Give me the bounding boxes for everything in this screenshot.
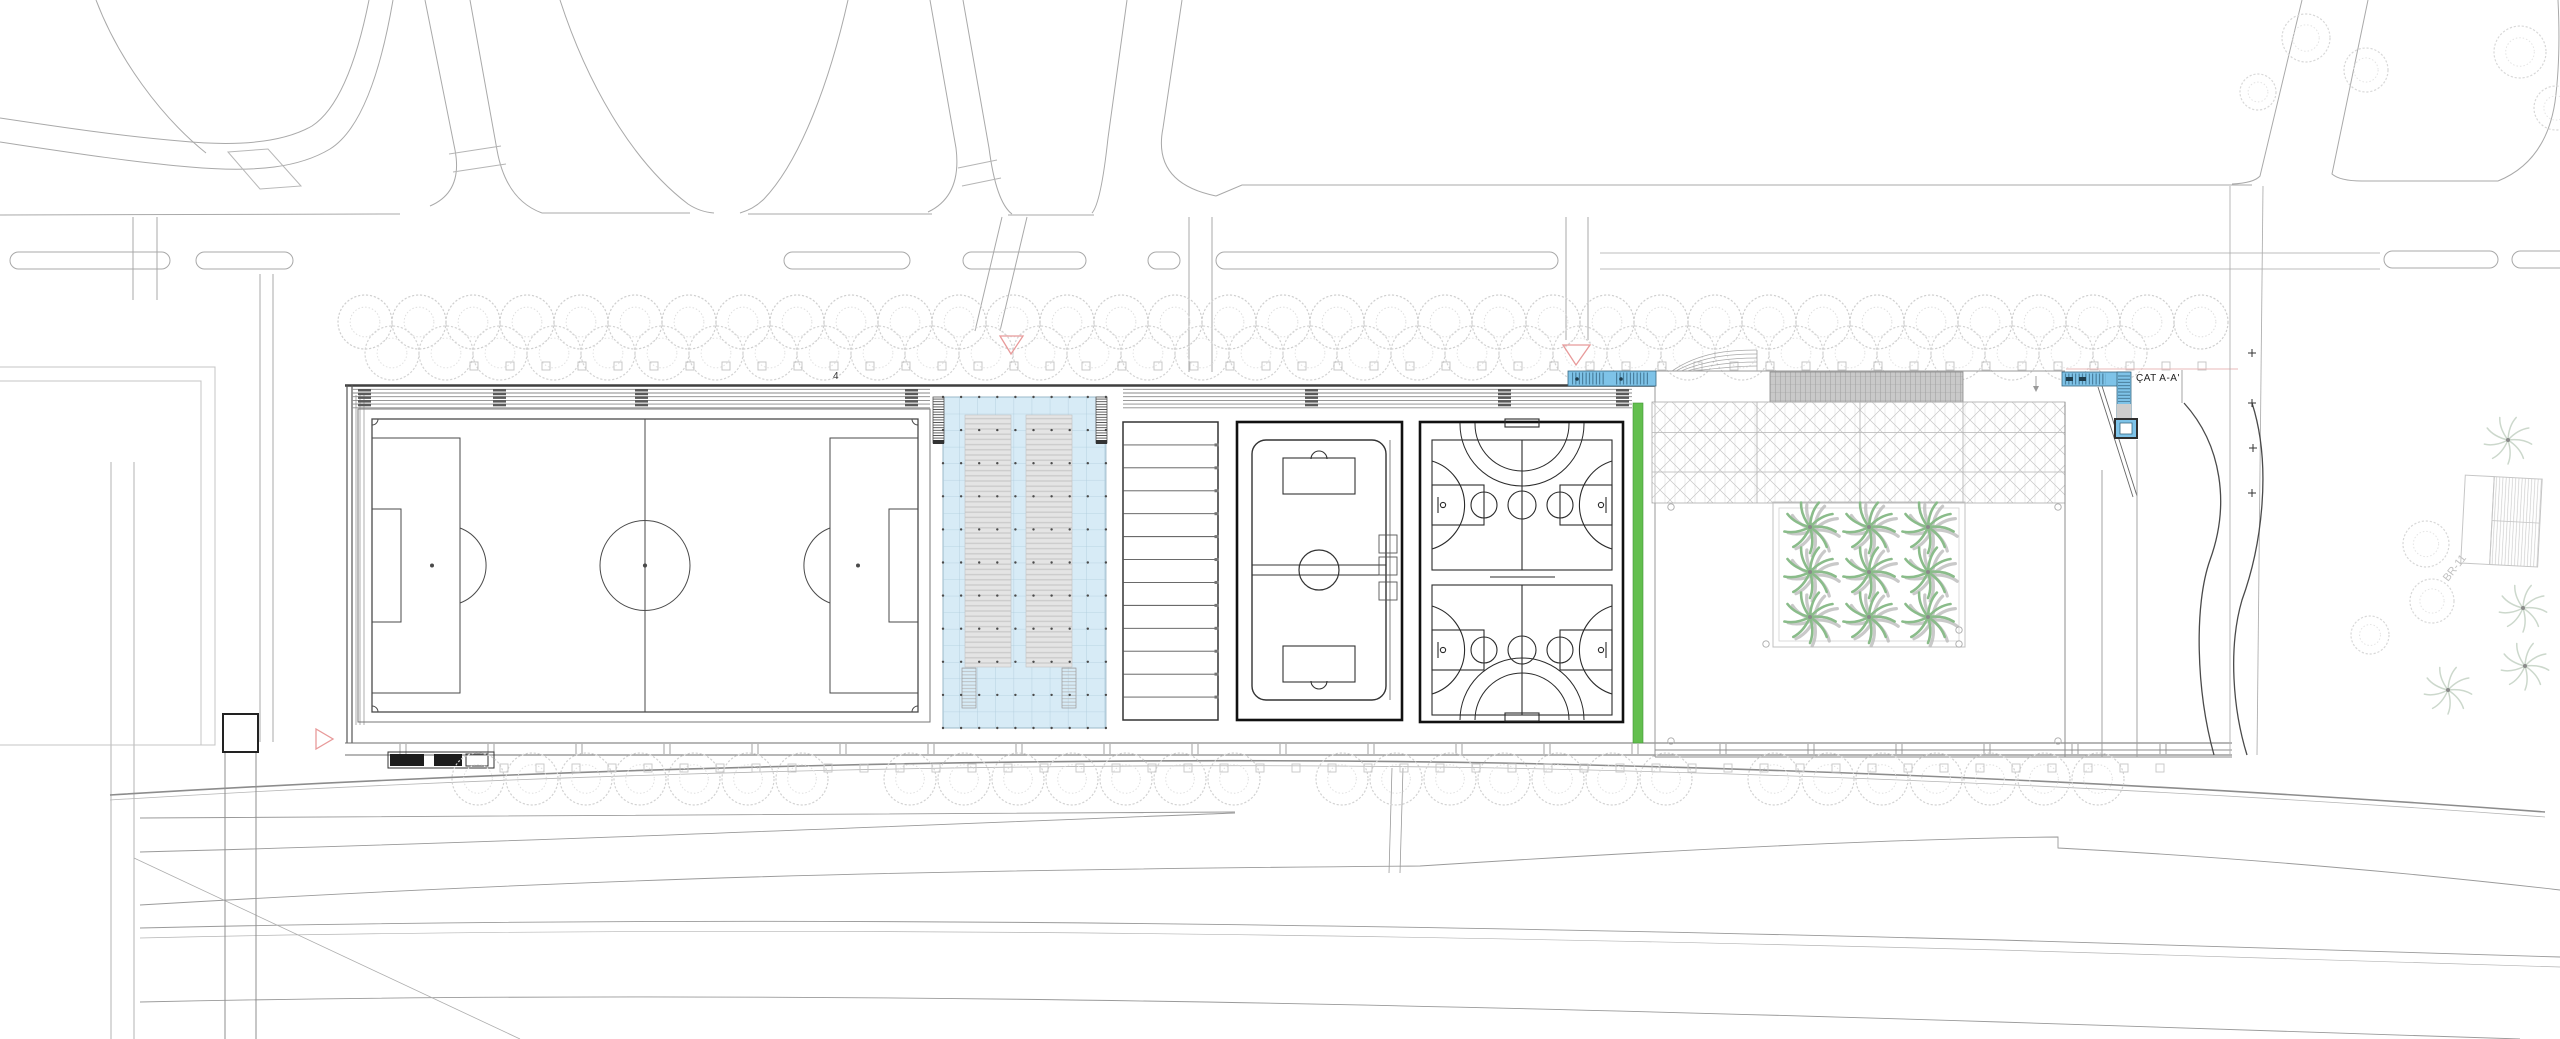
far-right-grove	[2240, 14, 2560, 714]
pool-canopy	[933, 396, 1107, 729]
plaza-building	[1652, 350, 2232, 757]
pool-ladder-right	[1062, 668, 1076, 708]
entrance-triangle-3	[316, 729, 333, 749]
tree-pits-top	[470, 362, 2206, 370]
road-median-pills	[10, 251, 2560, 269]
tree-row-top	[338, 295, 2228, 380]
palm-grid	[1784, 503, 1957, 646]
handball-court	[1237, 422, 1402, 720]
site-plan-canvas: 4	[0, 0, 2560, 1039]
east-path-curves	[2184, 186, 2263, 755]
football-field	[358, 409, 930, 722]
survey-cross-marks	[2248, 349, 2257, 497]
site-plan-svg: 4	[0, 0, 2560, 1039]
left-parcel-outline	[0, 367, 215, 745]
pool-stair-east	[1096, 397, 1107, 444]
terrace-steps	[1123, 422, 1219, 720]
section-label: ÇAT A-A'	[2136, 373, 2180, 384]
stand-bay-label: 4	[833, 371, 839, 382]
green-strip	[1633, 403, 1643, 743]
service-shaft	[223, 714, 258, 752]
road-network-bottom	[110, 714, 2560, 1039]
handball-overlay-arcs	[1460, 362, 1584, 782]
entry-ramp-curves	[1672, 350, 1757, 371]
lattice-canopy	[1652, 402, 2065, 503]
pool-stair-west	[933, 397, 944, 444]
pool-ladder-left	[962, 668, 976, 708]
blue-entry-stair	[1568, 371, 1656, 386]
walkway-ticks	[400, 744, 2166, 754]
road-network-top	[0, 0, 2560, 1039]
pergola-roof	[1770, 372, 1963, 402]
entry-steps-south	[388, 752, 494, 768]
outbuilding	[2461, 475, 2543, 567]
basketball-courts	[1420, 362, 1623, 782]
